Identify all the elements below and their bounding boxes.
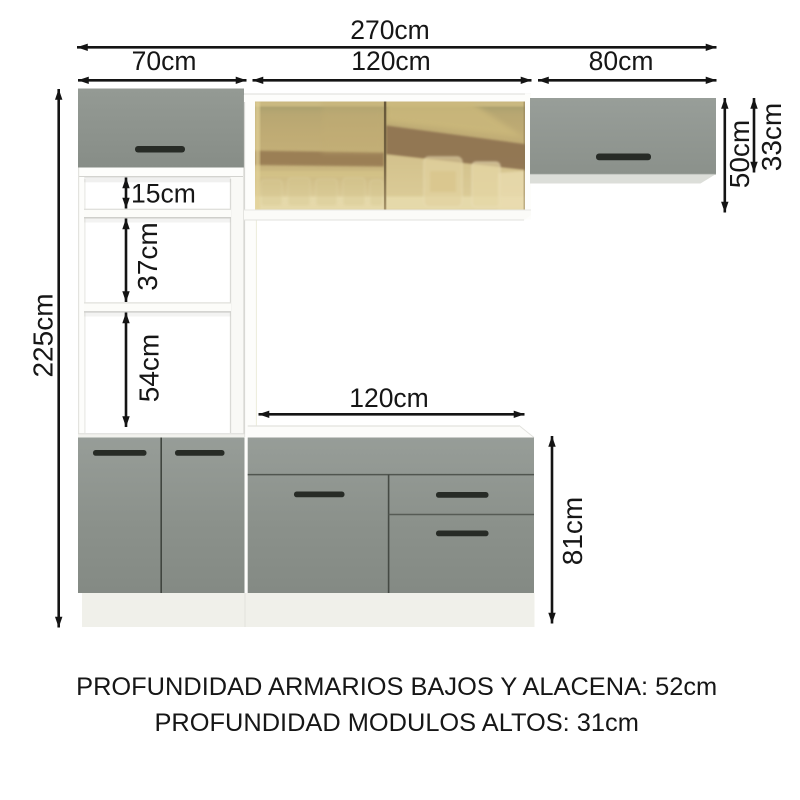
svg-text:120cm: 120cm	[351, 46, 431, 76]
svg-text:37cm: 37cm	[132, 222, 163, 290]
svg-text:70cm: 70cm	[132, 46, 197, 76]
svg-text:80cm: 80cm	[589, 46, 654, 76]
svg-text:120cm: 120cm	[349, 383, 429, 413]
svg-text:33cm: 33cm	[756, 103, 787, 171]
svg-text:54cm: 54cm	[134, 334, 165, 402]
svg-text:15cm: 15cm	[131, 179, 196, 209]
svg-text:PROFUNDIDAD ARMARIOS BAJOS Y A: PROFUNDIDAD ARMARIOS BAJOS Y ALACENA: 52…	[76, 673, 717, 701]
svg-text:PROFUNDIDAD MODULOS ALTOS: 31c: PROFUNDIDAD MODULOS ALTOS: 31cm	[154, 709, 638, 737]
svg-text:225cm: 225cm	[28, 293, 59, 377]
svg-text:270cm: 270cm	[350, 15, 430, 45]
svg-text:50cm: 50cm	[724, 120, 755, 188]
svg-text:81cm: 81cm	[557, 497, 588, 565]
